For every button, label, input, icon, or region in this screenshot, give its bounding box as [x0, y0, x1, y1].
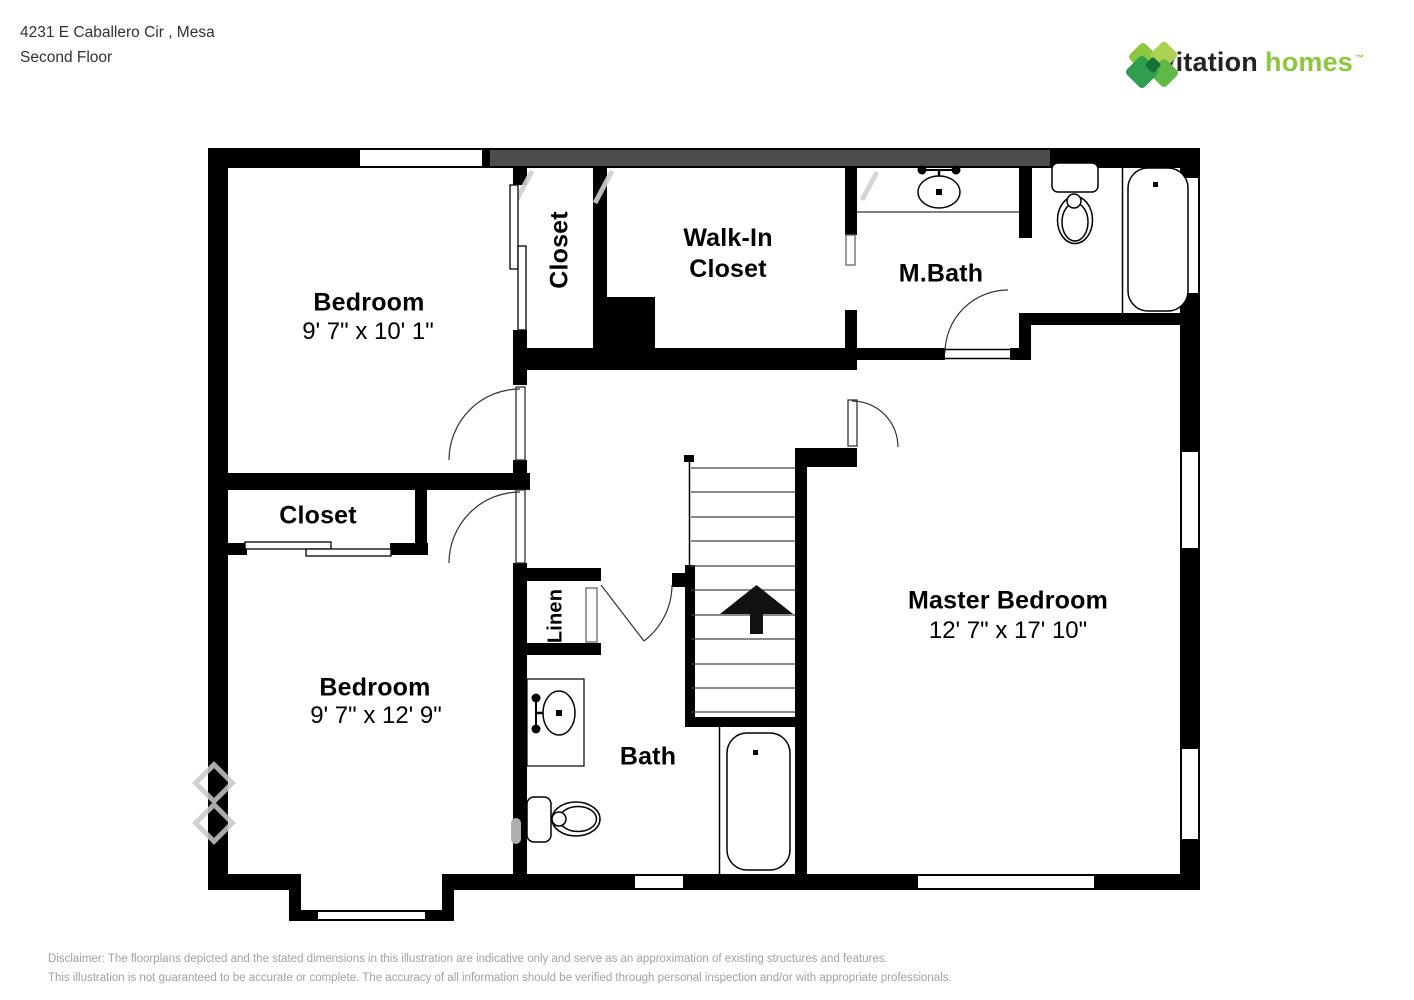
watermark-smudge [196, 150, 1050, 841]
door-stop [511, 818, 521, 844]
sliding-door [306, 549, 391, 556]
window [1181, 749, 1199, 839]
bathtub-icon [1128, 168, 1188, 311]
disclaimer-line-2: This illustration is not guaranteed to b… [48, 969, 952, 988]
door-leaf [601, 585, 644, 641]
sink-icon [918, 166, 961, 209]
master-bath-fixtures [918, 163, 1189, 311]
disclaimer-line-1: Disclaimer: The floorplans depicted and … [48, 950, 952, 969]
room-label-bath: Bath [620, 743, 676, 772]
door-leaf [516, 490, 525, 563]
door-arc [644, 585, 672, 641]
door-leaf [848, 400, 857, 446]
room-dims-master-bedroom: 12' 7" x 17' 10" [929, 617, 1087, 645]
room-label-closet-small: Closet [279, 502, 357, 531]
room-label-master-bath: M.Bath [899, 260, 984, 289]
door-leaf [846, 235, 855, 265]
room-label-walk-in-closet: Walk-In Closet [648, 223, 808, 285]
sliding-door [510, 185, 518, 269]
disclaimer: Disclaimer: The floorplans depicted and … [48, 950, 952, 987]
sliding-door [518, 246, 526, 330]
bath-fixtures [511, 679, 790, 870]
sliding-doors [245, 185, 526, 556]
room-label-bedroom-1: Bedroom [313, 289, 424, 318]
sink-icon [527, 679, 584, 766]
toilet-icon [1052, 163, 1098, 244]
floorplan-drawing [0, 0, 1414, 1000]
floorplan-page: 4231 E Caballero Cir , Mesa Second Floor… [0, 0, 1414, 1000]
window [360, 149, 482, 167]
stairs [691, 468, 795, 712]
stairs-up-arrow-icon [720, 585, 793, 634]
room-dims-bedroom-1: 9' 7" x 10' 1" [302, 318, 434, 346]
window [635, 875, 683, 889]
room-label-master-bedroom: Master Bedroom [908, 587, 1108, 616]
sliding-door [245, 542, 331, 549]
window [1181, 452, 1199, 548]
door-arc [449, 492, 520, 563]
door-arc [449, 389, 520, 460]
window [318, 911, 425, 920]
door-arc [945, 290, 1008, 353]
room-label-linen: Linen [545, 589, 568, 643]
room-label-bedroom-2: Bedroom [319, 674, 430, 703]
toilet-icon [527, 797, 600, 842]
room-label-closet-tall: Closet [546, 211, 575, 289]
window [918, 875, 1094, 889]
door-arc [852, 401, 898, 447]
door-leaf [586, 588, 597, 642]
stair-treads [691, 468, 795, 712]
bathtub-icon [727, 733, 790, 870]
room-dims-bedroom-2: 9' 7" x 12' 9" [310, 702, 442, 730]
door-leaf [516, 387, 525, 460]
